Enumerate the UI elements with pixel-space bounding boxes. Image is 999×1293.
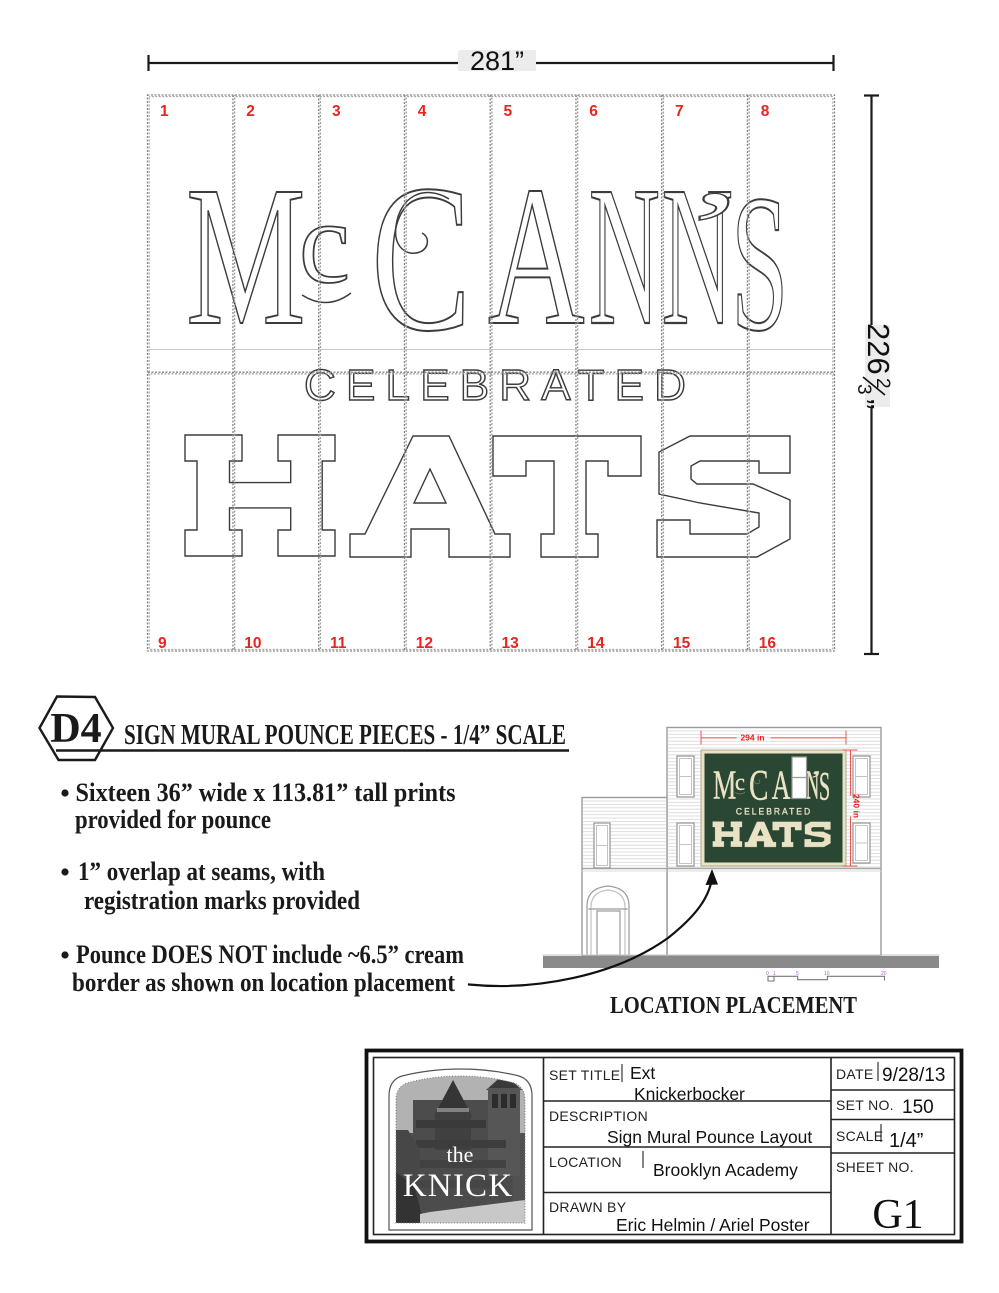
svg-text:14: 14 — [587, 635, 605, 652]
svg-text:DESCRIPTION: DESCRIPTION — [549, 1108, 648, 1124]
svg-text:DATE: DATE — [836, 1066, 874, 1082]
svg-text:Knickerbocker: Knickerbocker — [634, 1084, 745, 1104]
svg-text:240 in: 240 in — [852, 794, 862, 818]
svg-text:16: 16 — [759, 635, 777, 652]
svg-text:Sign Mural Pounce Layout: Sign Mural Pounce Layout — [607, 1127, 812, 1147]
svg-text:SET TITLE: SET TITLE — [549, 1067, 620, 1083]
svg-text:Pounce DOES NOT include ~6.5”: Pounce DOES NOT include ~6.5” cream — [76, 940, 464, 969]
svg-text:LOCATION PLACEMENT: LOCATION PLACEMENT — [610, 993, 857, 1019]
svg-text:281”: 281” — [470, 46, 524, 76]
svg-text:3: 3 — [853, 384, 874, 395]
svg-text:294 in: 294 in — [740, 733, 764, 743]
svg-text:provided for pounce: provided for pounce — [75, 805, 271, 834]
svg-text:”: ” — [846, 399, 881, 409]
svg-text:1/4”: 1/4” — [889, 1130, 923, 1152]
svg-text:0: 0 — [766, 971, 769, 977]
svg-text:5: 5 — [504, 103, 513, 120]
svg-text:G1: G1 — [872, 1192, 923, 1238]
svg-text:8: 8 — [761, 103, 770, 120]
svg-text:3: 3 — [332, 103, 341, 120]
svg-text:7: 7 — [675, 103, 684, 120]
svg-text:2: 2 — [246, 103, 255, 120]
svg-text:SCALE: SCALE — [836, 1128, 883, 1144]
svg-text:150: 150 — [902, 1097, 934, 1118]
svg-text:Ext: Ext — [630, 1063, 655, 1083]
svg-text:12: 12 — [416, 635, 433, 652]
svg-text:registration marks provided: registration marks provided — [84, 886, 360, 915]
svg-text:KNICK: KNICK — [403, 1168, 514, 1204]
svg-text:4: 4 — [418, 103, 427, 120]
svg-text:15: 15 — [673, 635, 691, 652]
svg-text:20: 20 — [881, 971, 887, 977]
svg-text:1: 1 — [773, 971, 776, 977]
svg-text:LOCATION: LOCATION — [549, 1154, 622, 1170]
svg-text:D4: D4 — [50, 706, 101, 752]
svg-text:SET NO.: SET NO. — [836, 1097, 894, 1113]
svg-text:9: 9 — [158, 635, 167, 652]
svg-text:9/28/13: 9/28/13 — [882, 1065, 945, 1086]
svg-text:6: 6 — [589, 103, 598, 120]
svg-text:1” overlap at seams, with: 1” overlap at seams, with — [78, 857, 325, 886]
svg-text:11: 11 — [330, 635, 347, 652]
svg-text:border as shown on location pl: border as shown on location placement — [72, 968, 455, 997]
svg-text:DRAWN BY: DRAWN BY — [549, 1199, 627, 1215]
svg-text:Eric Helmin / Ariel Poster: Eric Helmin / Ariel Poster — [616, 1215, 810, 1235]
svg-text:10: 10 — [244, 635, 261, 652]
svg-text:Sixteen 36” wide x 113.81” tal: Sixteen 36” wide x 113.81” tall prints — [76, 778, 456, 807]
svg-text:5: 5 — [796, 971, 799, 977]
svg-text:10: 10 — [824, 971, 830, 977]
svg-text:1: 1 — [160, 103, 169, 120]
svg-text:SHEET NO.: SHEET NO. — [836, 1159, 914, 1175]
svg-text:the: the — [447, 1142, 474, 1167]
svg-text:Brooklyn Academy: Brooklyn Academy — [653, 1160, 798, 1180]
svg-text:226: 226 — [861, 323, 896, 375]
svg-text:SIGN MURAL POUNCE PIECES - 1/4: SIGN MURAL POUNCE PIECES - 1/4” SCALE — [124, 719, 566, 751]
svg-text:13: 13 — [502, 635, 520, 652]
